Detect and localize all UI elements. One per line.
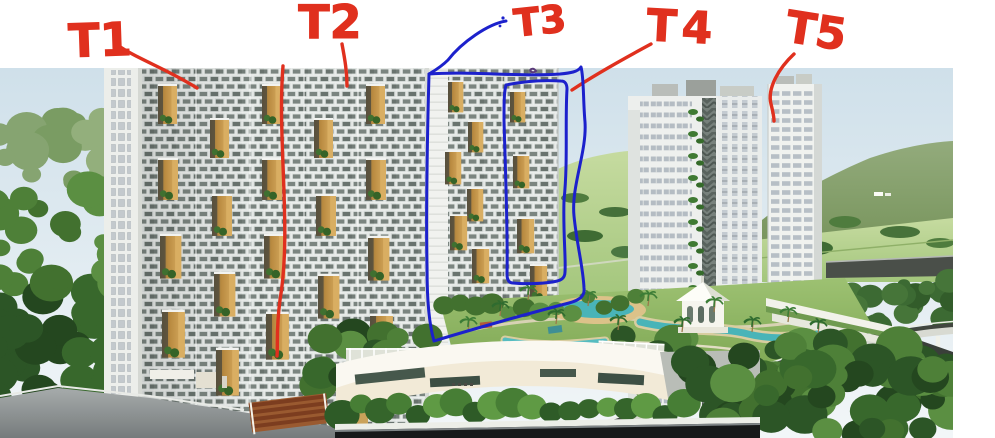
annotation-label-t2: T2 — [298, 0, 361, 49]
annotated-rendering: T1 T2 T3 T4 T5 — [0, 0, 995, 438]
photo-area — [0, 68, 975, 438]
ink-dot — [499, 25, 502, 28]
annotation-label-t4: T4 — [645, 0, 718, 55]
annotation-label-t5: T5 — [782, 2, 850, 62]
annotation-label-t3: T3 — [512, 0, 569, 46]
annotation-leader-t3 — [429, 21, 506, 74]
annotation-label-t1: T1 — [67, 12, 132, 68]
gap-fields — [556, 150, 640, 300]
scene-svg: T1 T2 T3 T4 T5 — [0, 0, 995, 438]
ink-dot — [501, 16, 504, 19]
